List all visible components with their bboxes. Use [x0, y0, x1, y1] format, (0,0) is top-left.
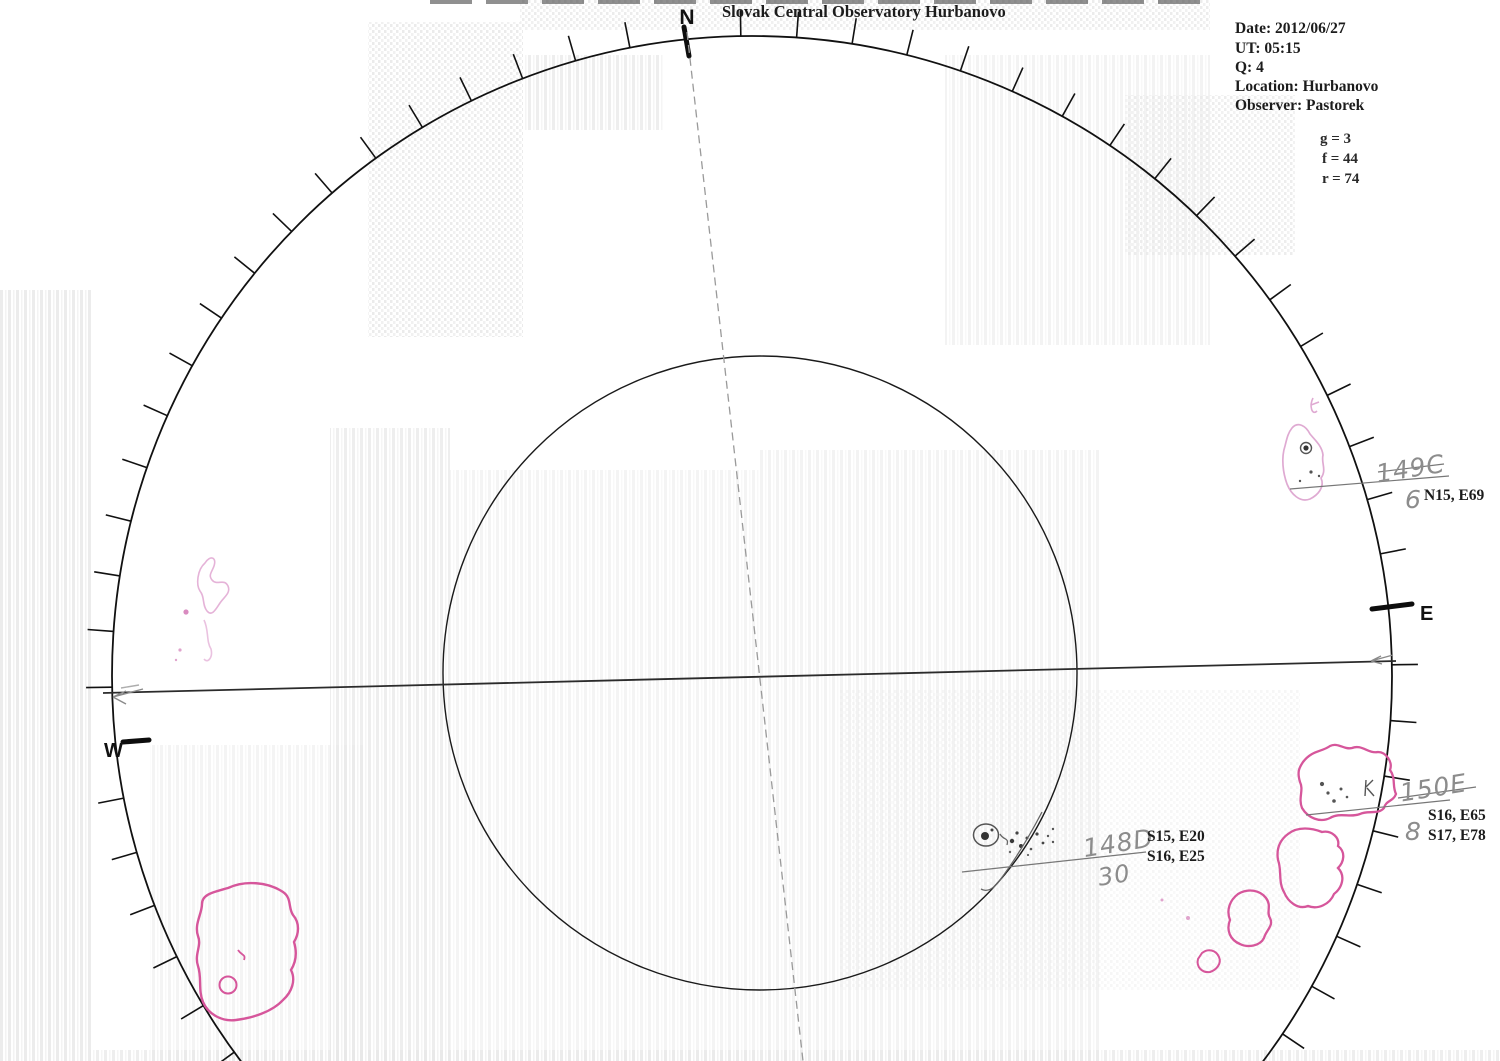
- equator-arrow-east: [1371, 655, 1393, 664]
- degree-tick: [1390, 721, 1416, 723]
- degree-tick: [1367, 492, 1392, 499]
- group-count: g = 3: [1320, 131, 1351, 147]
- region-150e-annotation: 150E 8 S16, E65 S17, E78: [1398, 768, 1486, 846]
- region-150e-coordinates-1: S16, E65: [1428, 807, 1486, 824]
- region-148d-coordinates-2: S16, E25: [1147, 848, 1205, 865]
- degree-tick: [273, 213, 292, 231]
- sunspot-drawing-sheet: Slovak Central Observatory Hurbanovo N E…: [0, 0, 1500, 1061]
- degree-tick: [1327, 384, 1350, 395]
- east-mark: [1372, 604, 1412, 609]
- region-148d-coordinates-1: S15, E20: [1147, 828, 1205, 845]
- observation-date: Date: 2012/06/27: [1235, 20, 1346, 37]
- degree-tick: [98, 798, 124, 803]
- degree-tick: [122, 459, 147, 467]
- degree-tick: [1337, 936, 1361, 947]
- observation-location: Location: Hurbanovo: [1235, 78, 1379, 95]
- degree-tick: [1373, 831, 1398, 837]
- region-150e-id: 150E: [1398, 768, 1469, 807]
- degree-tick: [1312, 986, 1335, 999]
- observation-time: UT: 05:15: [1235, 40, 1301, 57]
- sunspot-sketch-150e: [1299, 745, 1396, 820]
- sunspot-sketch-west-limb: [175, 558, 229, 661]
- degree-tick: [106, 515, 131, 521]
- observatory-title: Slovak Central Observatory Hurbanovo: [722, 2, 1006, 21]
- degree-tick: [170, 353, 193, 366]
- region-150e-spot-count: 8: [1405, 817, 1422, 846]
- wolf-number: r = 74: [1322, 171, 1360, 187]
- degree-tick: [1380, 549, 1406, 554]
- west-mark: [123, 740, 149, 742]
- seeing-quality: Q: 4: [1235, 59, 1264, 76]
- observation-info-block: Date: 2012/06/27 UT: 05:15 Q: 4 Location…: [1235, 20, 1379, 114]
- region-149c-annotation: 149C 6 N15, E69: [1374, 449, 1485, 514]
- degree-tick: [234, 257, 254, 273]
- region-149c-coordinates: N15, E69: [1424, 487, 1485, 504]
- degree-tick: [1350, 437, 1374, 446]
- north-label: N: [679, 6, 694, 29]
- region-148d-spot-count: 30: [1096, 859, 1133, 892]
- degree-tick: [907, 30, 913, 55]
- spot-count: f = 44: [1322, 151, 1359, 167]
- north-mark: [684, 27, 689, 56]
- region-149c-id: 149C: [1374, 449, 1447, 488]
- degree-tick: [200, 304, 222, 319]
- solar-disk-drawing: Slovak Central Observatory Hurbanovo N E…: [0, 0, 1500, 1061]
- degree-tick: [1301, 333, 1323, 346]
- degree-tick: [1357, 884, 1382, 892]
- statistics-block: g = 3 f = 44 r = 74: [1320, 131, 1360, 187]
- degree-tick: [315, 173, 332, 193]
- scan-artifact-bands: [0, 0, 1500, 1061]
- sunspot-sketch-149c: [1283, 398, 1324, 500]
- degree-tick: [1270, 285, 1291, 300]
- degree-tick: [112, 852, 137, 859]
- degree-tick: [1283, 1034, 1305, 1049]
- observer-name: Observer: Pastorek: [1235, 97, 1365, 114]
- region-150e-coordinates-2: S17, E78: [1428, 827, 1486, 844]
- west-label: W: [104, 740, 123, 762]
- degree-tick: [94, 572, 120, 576]
- region-149c-spot-count: 6: [1405, 485, 1422, 514]
- east-label: E: [1420, 603, 1433, 625]
- degree-tick: [144, 405, 168, 416]
- equator-arrow-west: [113, 685, 143, 704]
